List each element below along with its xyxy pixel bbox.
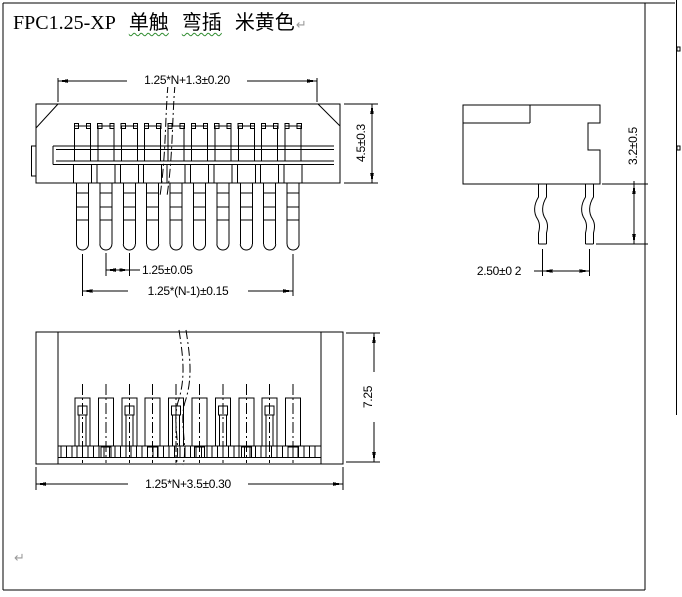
bent-leg xyxy=(582,184,595,244)
contact xyxy=(144,126,162,183)
pin xyxy=(77,183,89,250)
pin xyxy=(287,183,299,250)
contact xyxy=(214,126,232,183)
feature-term-2: 弯插 xyxy=(182,12,222,34)
bent-leg xyxy=(535,184,548,244)
front-view xyxy=(32,104,341,250)
footer-paragraph-mark-icon: ↵ xyxy=(14,551,25,566)
page-border xyxy=(3,0,680,590)
pin xyxy=(170,183,182,250)
contact xyxy=(237,126,255,183)
contact xyxy=(191,126,209,183)
pin xyxy=(100,183,112,250)
feature-term-1: 单触 xyxy=(129,12,169,34)
dim-label-pin-pitch: 1.25±0.05 xyxy=(142,263,212,277)
contact xyxy=(261,126,279,183)
document-page: FPC1.25-XP单触弯插米黄色↵ 1.25*N+1.3±0.20 4.5±0… xyxy=(0,0,682,597)
dim-label-bottom-width: 1.25*N+3.5±0.30 xyxy=(128,477,248,491)
pin xyxy=(264,183,276,250)
pin xyxy=(147,183,159,250)
part-number: FPC1.25-XP xyxy=(13,12,116,34)
dim-label-front-width: 1.25*N+1.3±0.20 xyxy=(127,73,247,87)
contact xyxy=(284,126,302,183)
dim-label-front-height: 4.5±0.3 xyxy=(354,108,368,178)
pin xyxy=(194,183,206,250)
contact xyxy=(120,126,138,183)
technical-drawing-canvas xyxy=(0,0,682,597)
dim-label-side-tail-span: 2.50±0 2 xyxy=(466,264,532,278)
dim-label-side-tail-length: 3.2±0.5 xyxy=(626,111,640,181)
dim-label-bottom-depth: 7.25 xyxy=(361,372,375,422)
color-term: 米黄色 xyxy=(235,12,295,34)
pin xyxy=(217,183,229,250)
drawing-title: FPC1.25-XP单触弯插米黄色↵ xyxy=(13,6,307,35)
pin xyxy=(123,183,135,250)
side-view xyxy=(463,105,600,244)
dim-label-pin-span: 1.25*(N-1)±0.15 xyxy=(128,284,248,298)
pin xyxy=(240,183,252,250)
bottom-view xyxy=(36,332,343,464)
contact xyxy=(97,126,115,183)
paragraph-mark-icon: ↵ xyxy=(296,18,307,33)
contact xyxy=(74,126,92,183)
